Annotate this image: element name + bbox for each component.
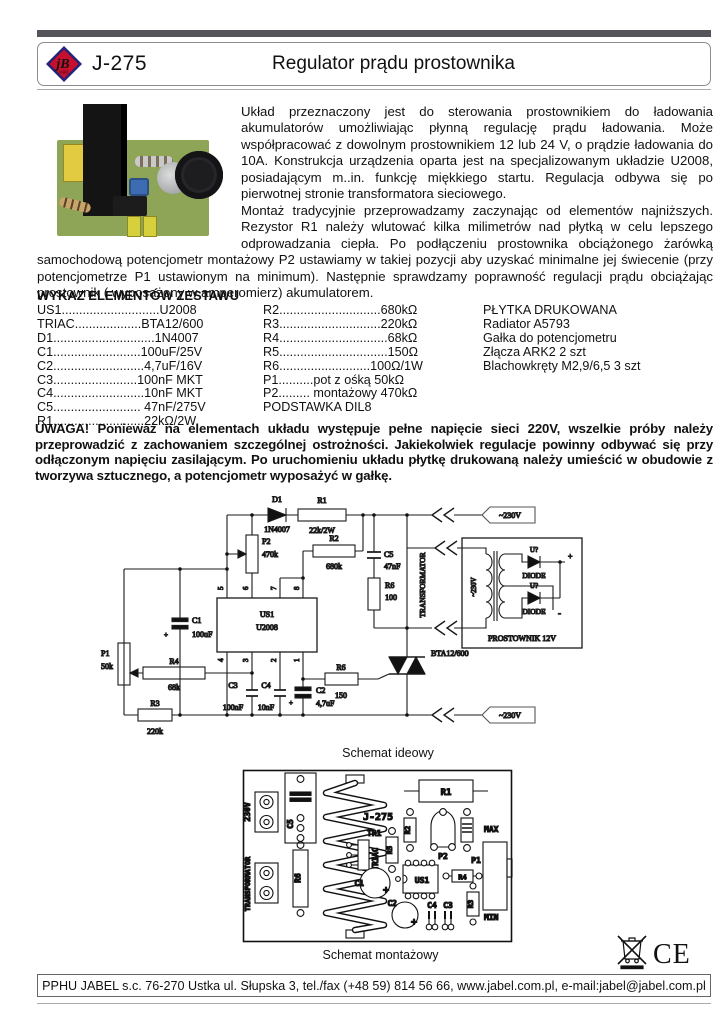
r1-label: R1 — [317, 496, 326, 505]
top-bar — [37, 30, 711, 37]
part-item: PODSTAWKA DIL8 — [263, 401, 483, 415]
part-item: TRIAC...................BTA12/600 — [37, 318, 263, 332]
pcb-layout: 230V TRANSFORMATOR C5 R6 J-275 — [242, 766, 514, 946]
pin-8: 8 — [293, 586, 301, 590]
part-item: Gałka do potencjometru — [483, 332, 713, 346]
potentiometer-p1: P1 50k — [101, 643, 138, 685]
r6-value: 100 — [385, 593, 397, 602]
c5-label: C5 — [384, 550, 393, 559]
pcb-us1-label: US1 — [415, 876, 430, 885]
us1-value: U2008 — [256, 623, 278, 632]
resistor-r2: R2 680k — [313, 534, 355, 571]
p2-label: P2 — [262, 537, 270, 546]
part-item: R5...............................150Ω — [263, 346, 483, 360]
pin-1: 1 — [293, 658, 301, 662]
capacitor-c5: C5 47nF — [367, 550, 401, 571]
part-item: C4..........................10nF MKT — [37, 387, 263, 401]
divider-line — [37, 1003, 711, 1004]
part-item: Złącza ARK2 2 szt — [483, 346, 713, 360]
prostownik-block: ~230V U? DIODE U? DIODE + - PROSTOWNIK 1… — [462, 538, 582, 648]
pin-4: 4 — [217, 658, 225, 662]
r3-label: R3 — [150, 699, 159, 708]
pcb-p1-label: P1 — [471, 856, 481, 865]
capacitor-c3: C3 100nF — [223, 681, 258, 712]
silk-tr1: TR1 — [367, 829, 382, 838]
pcb-r4: R4 — [443, 870, 482, 882]
c4-label: C4 — [261, 681, 270, 690]
connector-chevrons — [432, 508, 457, 722]
parts-heading: WYKAZ ELEMENTÓW ZESTAWU — [37, 288, 239, 303]
r3-value: 220k — [147, 727, 163, 736]
diode-ref: U? — [530, 546, 538, 554]
mains-voltage: ~230V — [499, 711, 521, 720]
pcb-triac: TRIAC — [347, 840, 380, 870]
d1-value: 1N4007 — [264, 525, 290, 534]
pcb-c5-label: C5 — [286, 819, 295, 829]
c1-value: 100uF — [192, 630, 213, 639]
weee-icon — [618, 936, 646, 969]
part-item: C3........................100nF MKT — [37, 374, 263, 388]
pcb-r4-label: R4 — [458, 874, 466, 882]
part-item: R2.............................680kΩ — [263, 304, 483, 318]
warning-text: UWAGA! Ponieważ na elementach układu wys… — [35, 421, 713, 483]
diode-label: DIODE — [522, 607, 546, 616]
p2-value: 470k — [262, 550, 278, 559]
r6-gate-value: 150 — [335, 691, 347, 700]
intro-paragraph-1: Układ przeznaczony jest do sterowania pr… — [241, 104, 713, 201]
p1-value: 50k — [101, 662, 113, 671]
photo-capacitor — [63, 144, 85, 182]
c3-label: C3 — [228, 681, 237, 690]
terminal-230v: 230V — [243, 792, 278, 832]
pcb-r3: R3 — [467, 883, 479, 925]
model-number: J-275 — [92, 52, 147, 76]
ce-mark: CE — [653, 939, 691, 970]
triac-label: BTA12/600 — [431, 649, 469, 658]
part-item: P2......... montażowy 470kΩ — [263, 387, 483, 401]
part-item: C2..........................4,7uF/16V — [37, 360, 263, 374]
mains-tag-bottom: ~230V — [482, 707, 535, 723]
r6-label: R6 — [385, 581, 394, 590]
logo-subtext: JABEL — [59, 71, 70, 75]
pcb-p2: P2 — [431, 809, 456, 861]
pcb-r5: R5 — [386, 828, 398, 873]
p1-label: P1 — [101, 649, 109, 658]
page-title: Regulator prądu prostownika — [147, 53, 710, 75]
part-item: P1..........pot z ośką 50kΩ — [263, 374, 483, 388]
resistor-r6-gate: R6 150 — [325, 663, 358, 700]
pcb-r1: R1 — [404, 780, 488, 802]
r6-gate-label: R6 — [336, 663, 345, 672]
prostownik-label: PROSTOWNIK 12V — [488, 634, 556, 643]
silk-model: J-275 — [363, 812, 393, 823]
c2-label: C2 — [316, 686, 325, 695]
pcb-r2: R2 — [404, 809, 416, 852]
diode-d1: D1 1N4007 — [264, 495, 290, 534]
jabel-logo-icon: jB JABEL — [46, 46, 82, 82]
c5-value: 47nF — [384, 562, 401, 571]
d1-label: D1 — [272, 495, 282, 504]
part-item: D1.............................1N4007 — [37, 332, 263, 346]
mains-voltage: ~230V — [499, 511, 521, 520]
r4-label: R4 — [169, 657, 178, 666]
potentiometer-p2: P2 470k — [238, 535, 278, 573]
pcb-p2-label: P2 — [438, 852, 448, 861]
pcb-c1-label: C1 — [354, 879, 364, 888]
pin-6: 6 — [242, 586, 250, 590]
us1-label: US1 — [260, 610, 274, 619]
pcb-r3-label: R3 — [467, 900, 475, 908]
photo-mkt-cap — [143, 216, 157, 237]
terminal-trafo-label: TRANSFORMATOR — [244, 856, 252, 912]
c3-value: 100nF — [223, 703, 244, 712]
intro-text: Układ przeznaczony jest do sterowania pr… — [37, 104, 713, 301]
pcb-c4: C4 — [426, 901, 438, 930]
part-item: C5......................... 47nF/275V — [37, 401, 263, 415]
pcb-triac-label: TRIAC — [371, 848, 380, 871]
pcb-r1-label: R1 — [441, 788, 452, 798]
part-item: Blachowkręty M2,9/6,5 3 szt — [483, 360, 713, 374]
pcb-c2-plus: + — [411, 917, 417, 928]
pcb-caption: Schemat montażowy — [288, 948, 473, 962]
photo-trimmer — [129, 178, 149, 196]
resistor-r3: R3 220k — [138, 699, 172, 736]
footer-contact: PPHU JABEL s.c. 76-270 Ustka ul. Słupska… — [42, 979, 706, 993]
compliance-marks: CE — [613, 928, 698, 970]
part-item: R4...............................68kΩ — [263, 332, 483, 346]
document-page: jB JABEL J-275 Regulator prądu prostowni… — [0, 0, 725, 1024]
photo-ic — [113, 196, 147, 216]
pin-3: 3 — [242, 658, 250, 662]
photo-knob — [175, 151, 223, 199]
mains-tag-top: ~230V — [482, 507, 535, 523]
pcb-r2-label: R2 — [404, 826, 412, 834]
primary-voltage: ~230V — [470, 577, 478, 596]
capacitor-c1: + C1 100uF — [164, 616, 213, 639]
parts-list: US1............................U2008 TRI… — [37, 304, 713, 429]
diode-label: DIODE — [522, 571, 546, 580]
part-item: C1.........................100uF/25V — [37, 346, 263, 360]
parts-column-3: PŁYTKA DRUKOWANA Radiator A5793 Gałka do… — [483, 304, 713, 429]
ic-us1: US1 U2008 5 6 7 8 4 3 2 1 — [217, 586, 317, 662]
resistor-r4: R4 68k — [143, 657, 205, 692]
terminal-transformator: TRANSFORMATOR — [244, 856, 278, 912]
pin-5: 5 — [217, 586, 225, 590]
triac-bta12: BTA12/600 — [389, 649, 469, 674]
transformator-label: TRANSFORMATOR — [418, 552, 427, 617]
terminal-230v-label: 230V — [243, 802, 252, 821]
parts-column-1: US1............................U2008 TRI… — [37, 304, 263, 429]
parts-column-2: R2.............................680kΩ R3.… — [263, 304, 483, 429]
schematic-caption: Schemat ideowy — [298, 746, 478, 760]
pcb-c5: C5 — [285, 773, 316, 843]
part-item: PŁYTKA DRUKOWANA — [483, 304, 713, 318]
resistor-r1: R1 22k/2W — [298, 496, 346, 535]
c2-plus: + — [289, 699, 293, 707]
c1-label: C1 — [192, 616, 201, 625]
pcb-us1: US1 — [396, 860, 438, 899]
silk-max: MAX — [484, 825, 499, 834]
part-item: US1............................U2008 — [37, 304, 263, 318]
part-item: R6..........................100Ω/1W — [263, 360, 483, 374]
pcb-c1-plus: + — [383, 885, 389, 896]
photo-mkt-cap — [127, 216, 141, 237]
pcb-photo — [57, 104, 225, 238]
pcb-d1 — [461, 809, 473, 852]
pin-2: 2 — [270, 658, 278, 662]
circuit-schematic: D1 1N4007 R1 22k/2W P2 470k R2 680k C5 4… — [98, 488, 723, 756]
pcb-c2-label: C2 — [387, 899, 397, 908]
pcb-photo-wrap — [37, 104, 233, 238]
r2-value: 680k — [326, 562, 342, 571]
pcb-c3-label: C3 — [443, 901, 453, 910]
pcb-r6: R6 — [293, 842, 308, 917]
pcb-c4-label: C4 — [427, 901, 437, 910]
minus-output: - — [558, 608, 561, 618]
c4-value: 10nF — [258, 703, 275, 712]
r2-label: R2 — [329, 534, 338, 543]
part-item: R3.............................220kΩ — [263, 318, 483, 332]
silk-min: MIN — [484, 913, 499, 922]
footer: PPHU JABEL s.c. 76-270 Ustka ul. Słupska… — [37, 974, 711, 997]
resistor-r6-snubber: R6 100 — [368, 578, 397, 610]
part-item: Radiator A5793 — [483, 318, 713, 332]
r4-value: 68k — [168, 683, 180, 692]
header: jB JABEL J-275 Regulator prądu prostowni… — [37, 42, 711, 86]
c2-value: 4,7uF — [316, 699, 335, 708]
capacitor-c2: + C2 4,7uF — [289, 686, 335, 708]
pcb-c2: + C2 — [387, 899, 418, 928]
transformator-text: TRANSFORMATOR — [418, 552, 427, 617]
divider-line — [37, 89, 711, 90]
pcb-r5-label: R5 — [386, 846, 394, 854]
pcb-c3: C3 — [442, 901, 454, 930]
diode-ref: U? — [530, 582, 538, 590]
pin-7: 7 — [270, 586, 278, 590]
c1-plus: + — [164, 631, 168, 639]
pcb-r6-label: R6 — [294, 873, 303, 883]
capacitor-c4: C4 10nF — [258, 681, 286, 712]
plus-output: + — [568, 552, 573, 561]
